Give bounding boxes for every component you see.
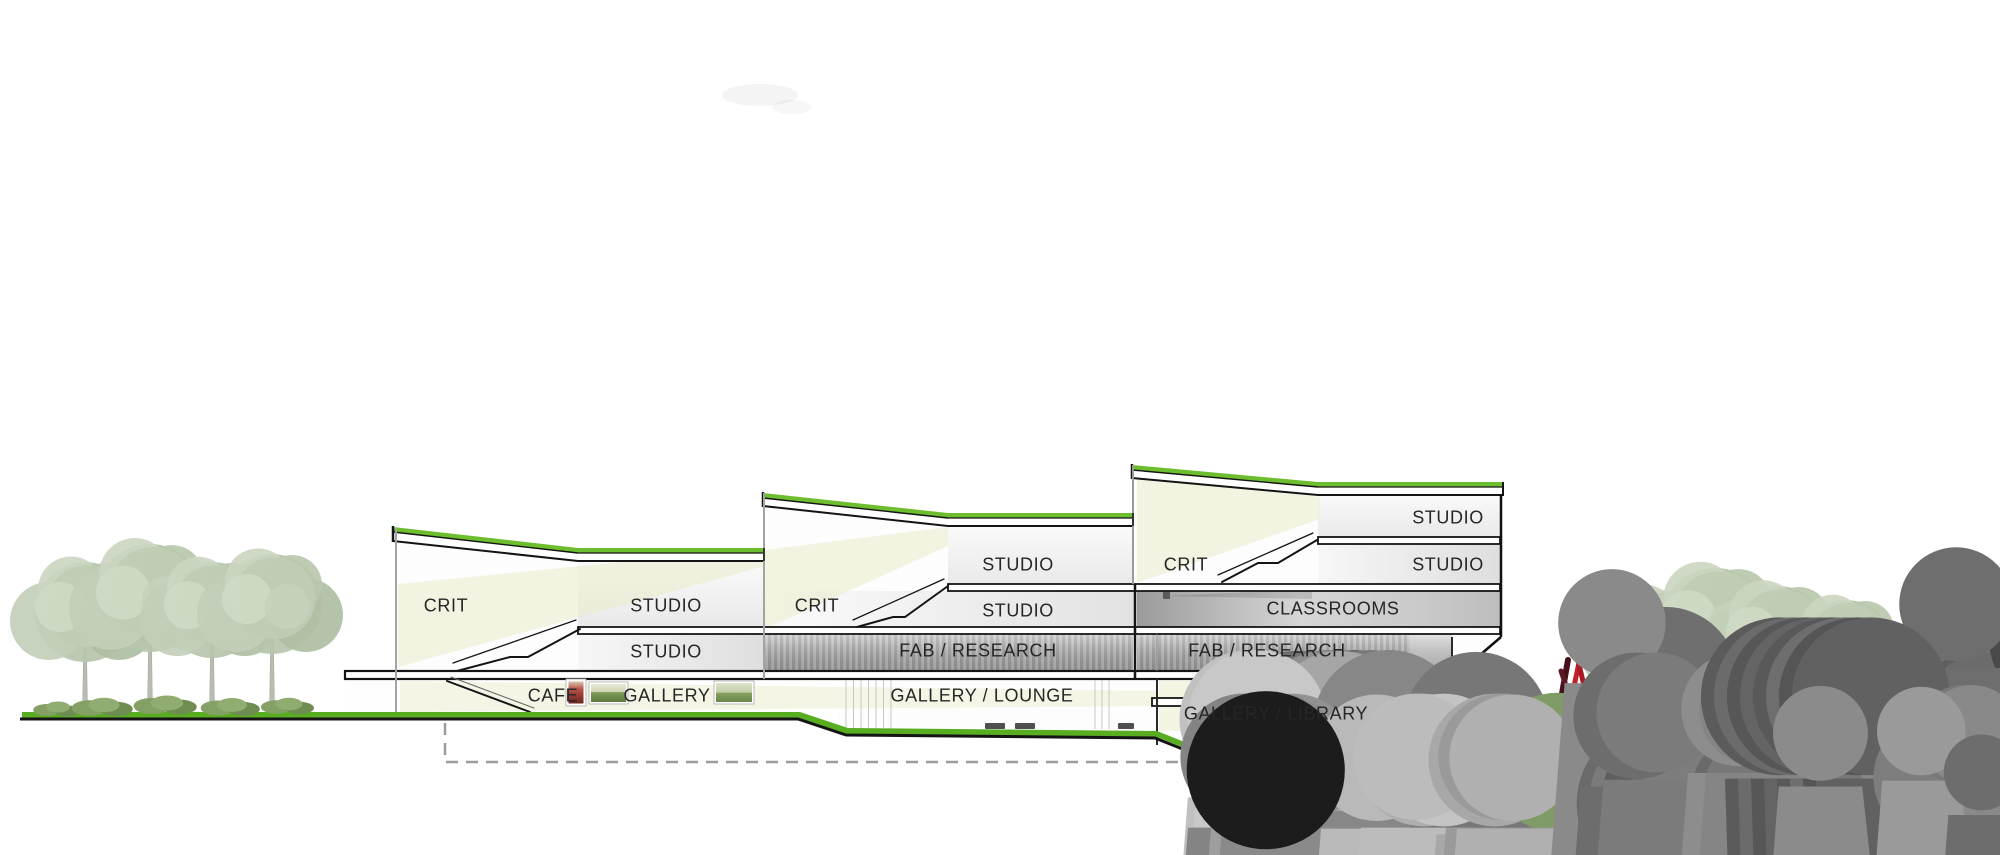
paper-smudge [722,84,812,114]
artwork-landscape-1 [589,682,628,704]
label-studio-right-lower: STUDIO [1412,555,1484,576]
label-studio-mid-lower: STUDIO [982,601,1054,622]
label-studio-left-upper: STUDIO [630,596,702,617]
label-gallery-lounge: GALLERY / LOUNGE [890,686,1073,707]
label-fab-research-mid: FAB / RESEARCH [899,641,1056,662]
architectural-section-drawing: CRIT STUDIO STUDIO CRIT STUDIO STUDIO FA… [0,0,2000,855]
section-canvas [0,0,2000,855]
label-classrooms: CLASSROOMS [1266,599,1399,620]
label-gallery-library: GALLERY / LIBRARY [1184,704,1368,725]
label-fab-research-right: FAB / RESEARCH [1188,641,1345,662]
label-crit-right: CRIT [1164,555,1208,576]
label-crit-mid: CRIT [795,596,839,617]
label-crit-left: CRIT [424,596,468,617]
label-studio-mid-upper: STUDIO [982,555,1054,576]
projector [1163,592,1170,599]
label-cafe: CAFE [528,686,578,707]
shrub [72,698,133,716]
label-studio-left-lower: STUDIO [630,642,702,663]
label-studio-right-upper: STUDIO [1412,508,1484,529]
shrub [261,698,314,714]
label-gallery: GALLERY [624,686,711,707]
artwork-landscape-2 [714,681,754,704]
shrub [134,696,197,715]
